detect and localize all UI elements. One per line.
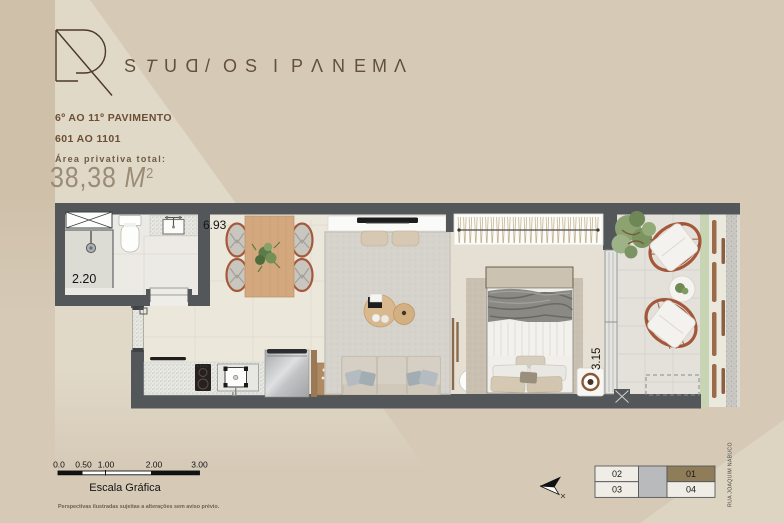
svg-text:Perspectivas ilustradas sujeit: Perspectivas ilustradas sujeitas a alter… [58, 504, 220, 510]
svg-text:3.15: 3.15 [591, 348, 603, 370]
svg-text:1.00: 1.00 [98, 460, 115, 470]
svg-text:0.50: 0.50 [75, 460, 92, 470]
svg-text:0.0: 0.0 [53, 460, 65, 470]
svg-text:04: 04 [686, 485, 696, 495]
svg-text:01: 01 [686, 469, 696, 479]
svg-text:3.00: 3.00 [191, 460, 208, 470]
svg-text:2.00: 2.00 [146, 460, 163, 470]
svg-text:02: 02 [612, 469, 622, 479]
svg-text:RUA JOAQUIM NABUCO: RUA JOAQUIM NABUCO [728, 442, 734, 507]
svg-text:03: 03 [612, 485, 622, 495]
svg-text:6.93: 6.93 [203, 218, 227, 232]
svg-text:Escala Gráfica: Escala Gráfica [89, 482, 161, 494]
svg-text:2.20: 2.20 [72, 272, 96, 286]
